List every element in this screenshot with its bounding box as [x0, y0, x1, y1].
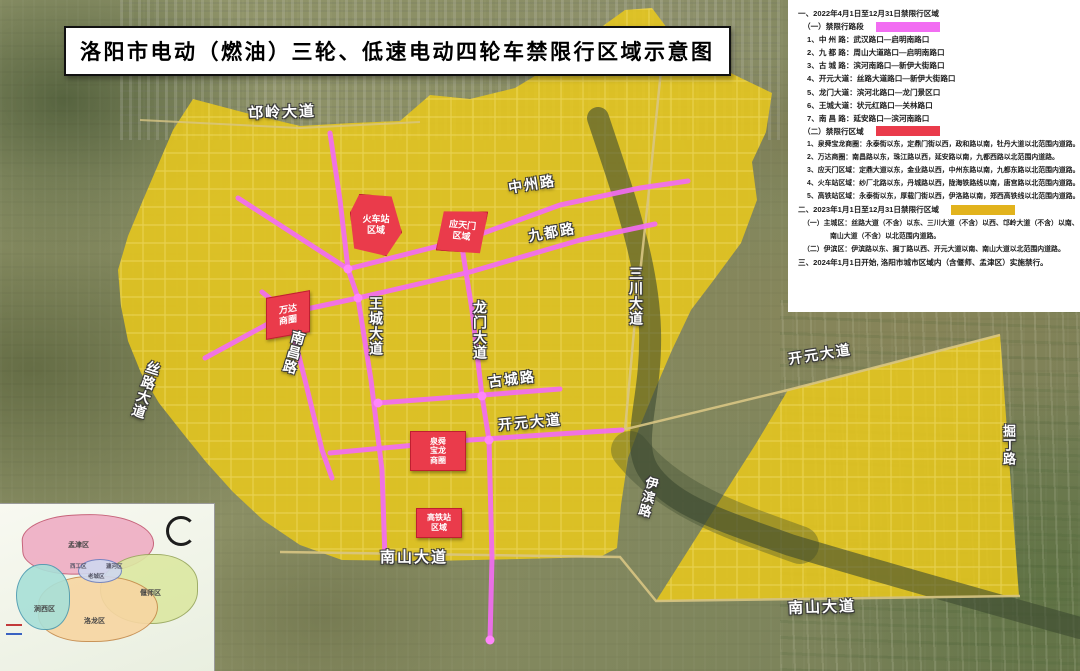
inset-legend-blue-line	[6, 633, 22, 635]
legend-area-item: 1、泉舜宝龙商圈：永泰街以东，定鼎门街以西，政和路以南，牡丹大道以北范围内道路。	[796, 138, 1072, 151]
legend-restricted-areas-heading: （二）禁限行区域	[796, 125, 1072, 138]
inset-label-xigong: 西工区	[70, 562, 87, 570]
road-label-nanshan: 南山大道	[380, 546, 448, 567]
legend-panel: 一、2022年4月1日至12月31日禁限行区域 （一）禁限行路段 1、中 州 路…	[788, 0, 1080, 312]
legend-area-item: 2、万达商圈：南昌路以东，珠江路以西，延安路以南，九都西路以北范围内道路。	[796, 151, 1072, 164]
legend-area-item: 4、火车站区域：纱厂北路以东，丹城路以西，陇海铁路线以南，唐宫路以北范围内道路。	[796, 177, 1072, 190]
legend-road-item: 3、古 城 路：滨河南路口—新伊大街路口	[796, 59, 1072, 72]
road-label-longmen: 龙门大道	[470, 300, 490, 360]
legend-heading-2022: 一、2022年4月1日至12月31日禁限行区域	[796, 7, 1072, 20]
legend-road-item: 5、龙门大道：滨河北路口—龙门景区口	[796, 86, 1072, 99]
legend-heading-2024: 三、2024年1月1日开始, 洛阳市城市区域内（含偃师、孟津区）实施禁行。	[796, 256, 1072, 269]
legend-area-item: 5、高铁站区域：永泰街以东，厚载门街以西，伊洛路以南，郑西高铁线以北范围内道路。	[796, 190, 1072, 203]
legend-yibin-item: （二）伊滨区：伊滨路以东、掘丁路以西、开元大道以南、南山大道以北范围内道路。	[796, 243, 1072, 256]
red-area-swatch	[876, 126, 940, 136]
legend-restricted-roads-heading: （一）禁限行路段	[796, 20, 1072, 33]
map-screenshot: 火车站 区域 应天门 区域 万达 商圈 泉舜 宝龙 商圈 高铁站 区域 邙岭大道…	[0, 0, 1080, 671]
legend-main-city-item: （一）主城区：丝路大道（不含）以东、三川大道（不含）以西、邙岭大道（不含）以南、	[796, 217, 1072, 230]
road-label-sanchuan: 三川大道	[626, 266, 646, 326]
legend-heading-2023: 二、2023年1月1日至12月31日禁限行区域	[796, 203, 1072, 216]
yellow-zone-swatch	[951, 205, 1015, 215]
inset-label-luolong: 洛龙区	[84, 616, 105, 626]
area-quanshun-baolong-mall: 泉舜 宝龙 商圈	[410, 431, 466, 471]
area-hsr-station: 高铁站 区域	[416, 508, 462, 538]
inset-label-chanhe: 瀍河区	[106, 562, 123, 570]
legend-main-city-item-cont: 南山大道（不含）以北范围内道路。	[796, 230, 1072, 243]
inset-label-jianxi: 涧西区	[34, 604, 55, 614]
inset-label-mengjin: 孟津区	[68, 540, 89, 550]
inset-label-yanshi: 偃师区	[140, 588, 161, 598]
road-label-wangcheng: 王城大道	[366, 296, 386, 356]
map-title: 洛阳市电动（燃油）三轮、低速电动四轮车禁限行区域示意图	[64, 26, 731, 76]
legend-road-item: 2、九 都 路：周山大道路口—启明南路口	[796, 46, 1072, 59]
district-inset-map: 孟津区 偃师区 洛龙区 涧西区 西工区 老城区 瀍河区	[0, 503, 215, 671]
road-label-nanshan-east: 南山大道	[788, 595, 857, 618]
legend-area-item: 3、应天门区域：定鼎大道以东，金业路以西，中州东路以南，九都东路以北范围内道路。	[796, 164, 1072, 177]
inset-jianxi-shape	[16, 564, 70, 630]
legend-road-item: 1、中 州 路：武汉路口—启明南路口	[796, 33, 1072, 46]
legend-road-item: 7、南 昌 路：延安路口—滨河南路口	[796, 112, 1072, 125]
inset-label-laocheng: 老城区	[88, 572, 105, 580]
pink-road-swatch	[876, 22, 940, 32]
inset-legend-red-line	[6, 624, 22, 626]
road-label-jueding: 掘丁路	[999, 424, 1018, 466]
compass-icon	[166, 516, 196, 546]
road-label-mangling: 邙岭大道	[248, 100, 317, 123]
legend-road-item: 4、开元大道：丝路大道路口—新伊大街路口	[796, 72, 1072, 85]
area-yingtianmen: 应天门 区域	[436, 207, 488, 256]
legend-road-item: 6、王城大道：状元红路口—关林路口	[796, 99, 1072, 112]
